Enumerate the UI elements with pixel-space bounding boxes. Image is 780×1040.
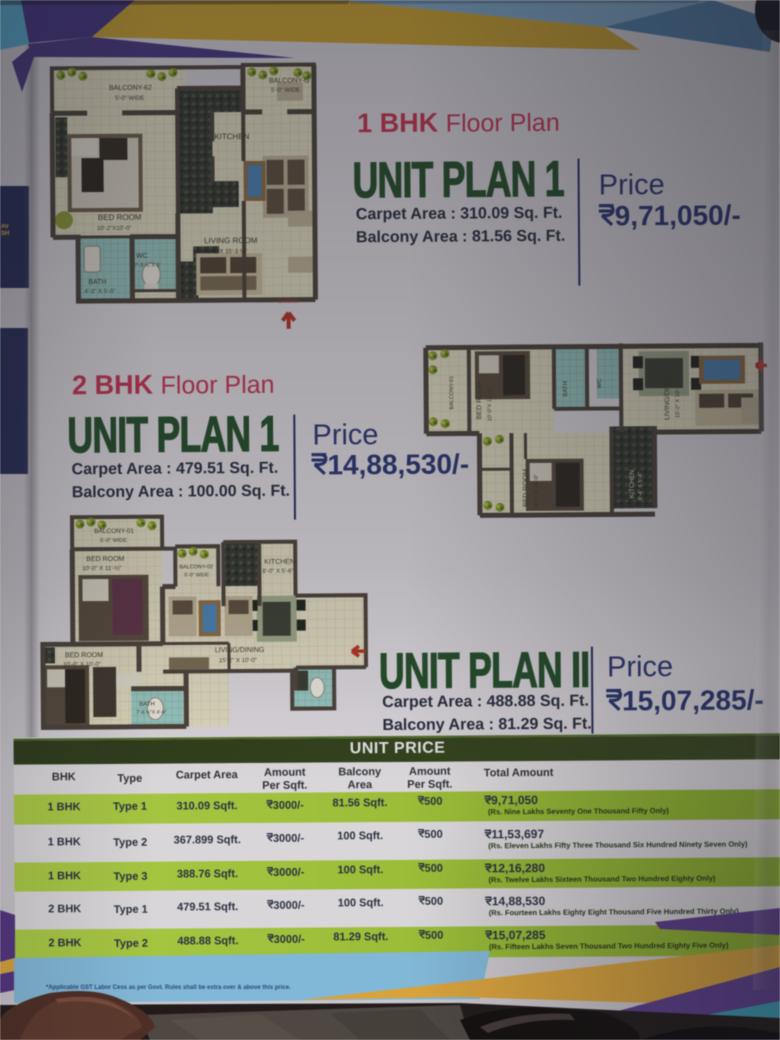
svg-text:BED ROOM: BED ROOM	[98, 213, 142, 222]
svg-text:4'-3" X 5'-0": 4'-3" X 5'-0"	[84, 289, 115, 295]
svg-text:BATH: BATH	[139, 702, 155, 708]
svg-text:5'-0" WIDE: 5'-0" WIDE	[115, 96, 144, 102]
svg-text:BALCONY-G: BALCONY-G	[269, 78, 310, 85]
svg-text:8'-4" X 5'-6": 8'-4" X 5'-6"	[638, 472, 644, 501]
svg-text:BED ROOM: BED ROOM	[523, 469, 530, 507]
svg-text:LIVING/DINING: LIVING/DINING	[664, 371, 671, 420]
svg-text:BED ROOM: BED ROOM	[476, 381, 483, 419]
svg-text:KITCHEN: KITCHEN	[214, 132, 249, 141]
svg-text:KITCHEN: KITCHEN	[629, 469, 636, 498]
svg-text:KITCHEN: KITCHEN	[264, 559, 295, 566]
svg-text:BATH: BATH	[88, 279, 106, 286]
svg-text:BATH: BATH	[563, 381, 569, 397]
svg-text:5'-0" WIDE: 5'-0" WIDE	[100, 538, 127, 544]
svg-text:5'-0" WIDE: 5'-0" WIDE	[184, 572, 209, 578]
svg-text:10'-0" X 11'-½": 10'-0" X 11'-½"	[82, 565, 121, 572]
svg-text:*Applicable GST Labor Cess as: *Applicable GST Labor Cess as per Govt. …	[46, 985, 291, 991]
svg-text:15'-2" X 10'-0": 15'-2" X 10'-0"	[219, 658, 257, 664]
svg-text:5'-0" WIDE: 5'-0" WIDE	[271, 88, 300, 94]
svg-text:8'-0" X 5'-6": 8'-0" X 5'-6"	[262, 569, 293, 575]
svg-text:LIVING/DINING: LIVING/DINING	[215, 647, 264, 654]
svg-text:10'-2"X10'-0": 10'-2"X10'-0"	[97, 226, 132, 232]
svg-text:WC: WC	[597, 378, 603, 389]
svg-text:15'-2" X 10'-0": 15'-2" X 10'-0"	[675, 383, 681, 418]
svg-text:BALCONY-01: BALCONY-01	[449, 376, 455, 410]
svg-text:BALCONY-01: BALCONY-01	[94, 528, 134, 535]
svg-text:Entrance: Entrance	[278, 299, 298, 305]
svg-text:7'-3 ½"X 5': 7'-3 ½"X 5'	[134, 262, 160, 269]
svg-text:BED ROOM: BED ROOM	[86, 556, 124, 563]
svg-text:10'-0"X 11'-½": 10'-0"X 11'-½"	[486, 387, 493, 421]
svg-text:10'-0" X 10'-0": 10'-0" X 10'-0"	[63, 662, 101, 668]
svg-text:7'-6 ½"X 4'-6": 7'-6 ½"X 4'-6"	[136, 709, 166, 716]
svg-text:BED ROOM: BED ROOM	[65, 652, 103, 659]
svg-text:LIVING ROOM: LIVING ROOM	[204, 236, 258, 245]
svg-text:BALCONY-62: BALCONY-62	[109, 85, 152, 92]
svg-text:10'-0" X 10'-0": 10'-0" X 10'-0"	[534, 474, 540, 509]
svg-text:10'-1"X 15'-3 ½": 10'-1"X 15'-3 ½"	[204, 248, 247, 255]
svg-text:WC: WC	[136, 253, 148, 260]
svg-text:BALCONY-02: BALCONY-02	[179, 564, 213, 570]
